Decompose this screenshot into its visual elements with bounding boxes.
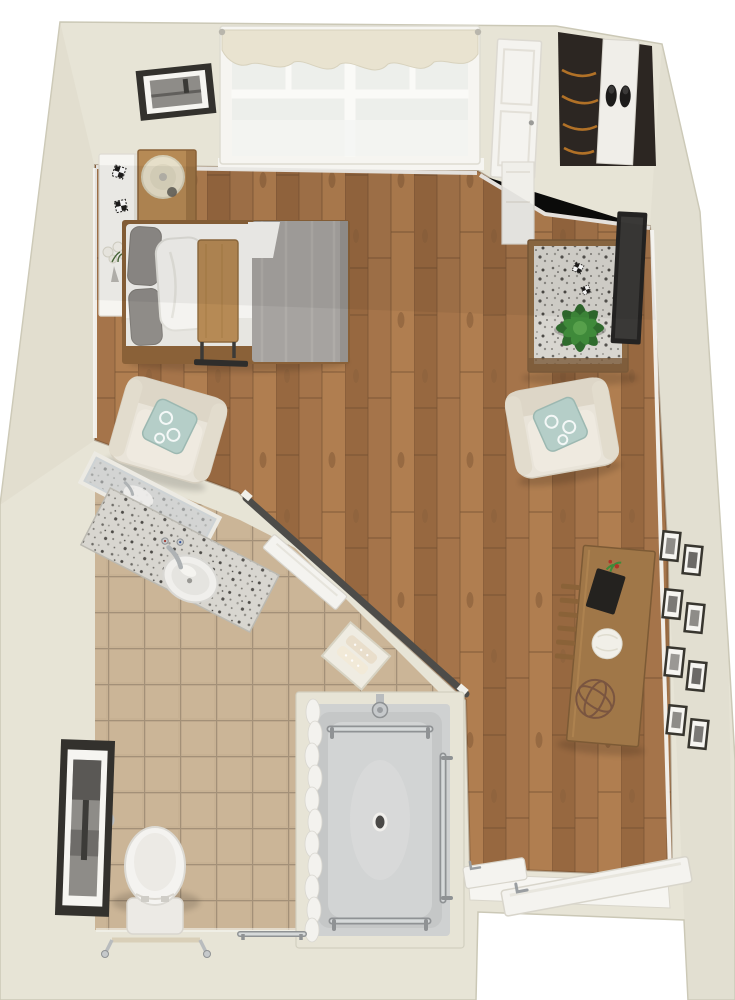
bathroom-wall-art: Tall framed black and white art in bathr…	[55, 739, 115, 917]
wall-art-top-left: Framed black and white photo on upper wa…	[136, 63, 217, 121]
closet: Closet with hanging clothes and shoe she…	[558, 32, 656, 166]
curtain-rod-finial-left	[219, 29, 225, 35]
closet-door: White closet door	[490, 39, 541, 179]
armchair-right: Cream armchair with teal patterned pillo…	[503, 376, 623, 492]
floor-plan-render: Top-down 3D floor plan — studio apartmen…	[0, 0, 735, 1000]
shower-drain	[374, 814, 386, 830]
floor-plan-stage: Top-down 3D floor plan — studio apartmen…	[0, 0, 735, 1000]
curtain-rod-finial-right	[475, 29, 481, 35]
shower: Roll-in shower with grab bars, curtain a…	[296, 692, 464, 948]
closet-shelf	[597, 39, 639, 165]
window: Double window with cream scalloped valan…	[218, 26, 484, 170]
window-lower-pane-light	[232, 120, 468, 156]
